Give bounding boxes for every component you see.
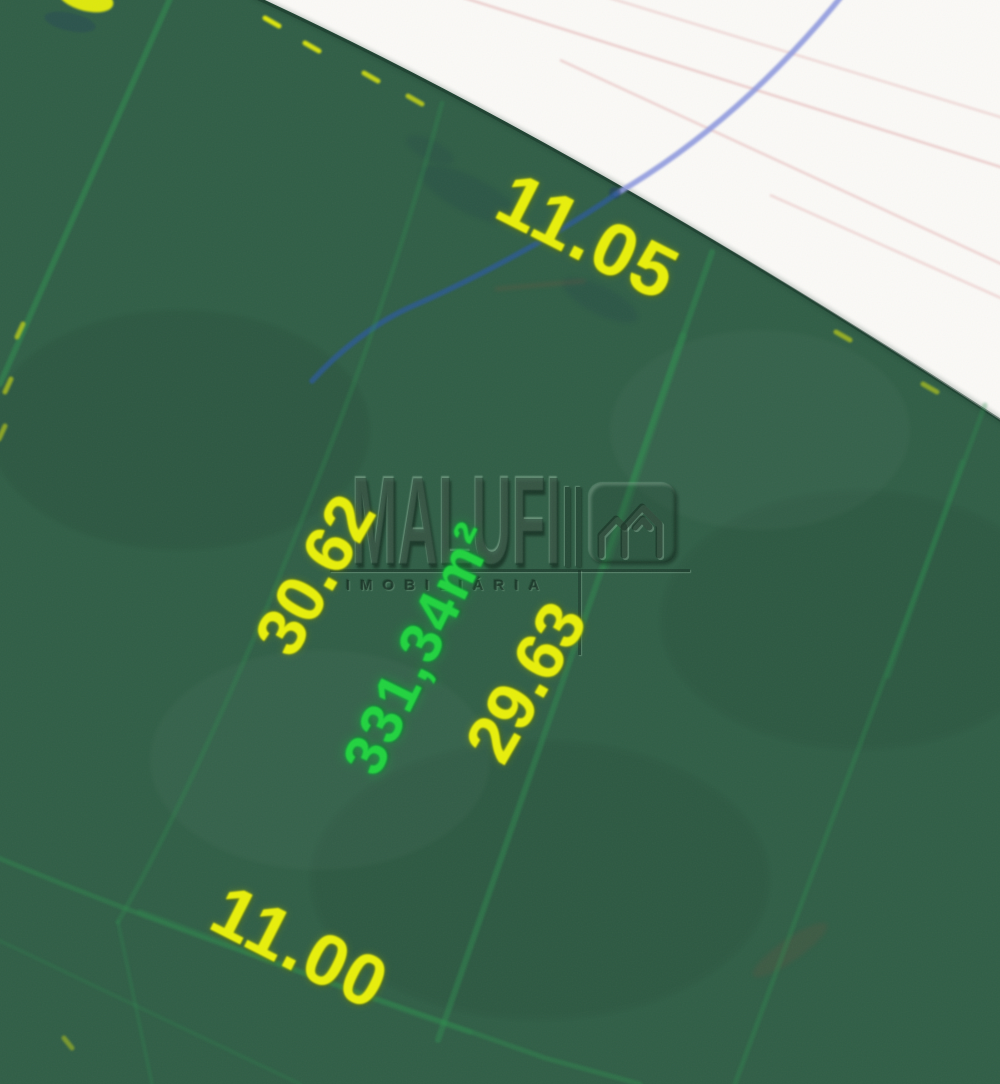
clipped-number-blob <box>43 0 117 36</box>
lot-survey-map: MALUFI IMOBI <box>0 0 1000 1084</box>
lot-line-left-tail <box>118 922 152 1084</box>
